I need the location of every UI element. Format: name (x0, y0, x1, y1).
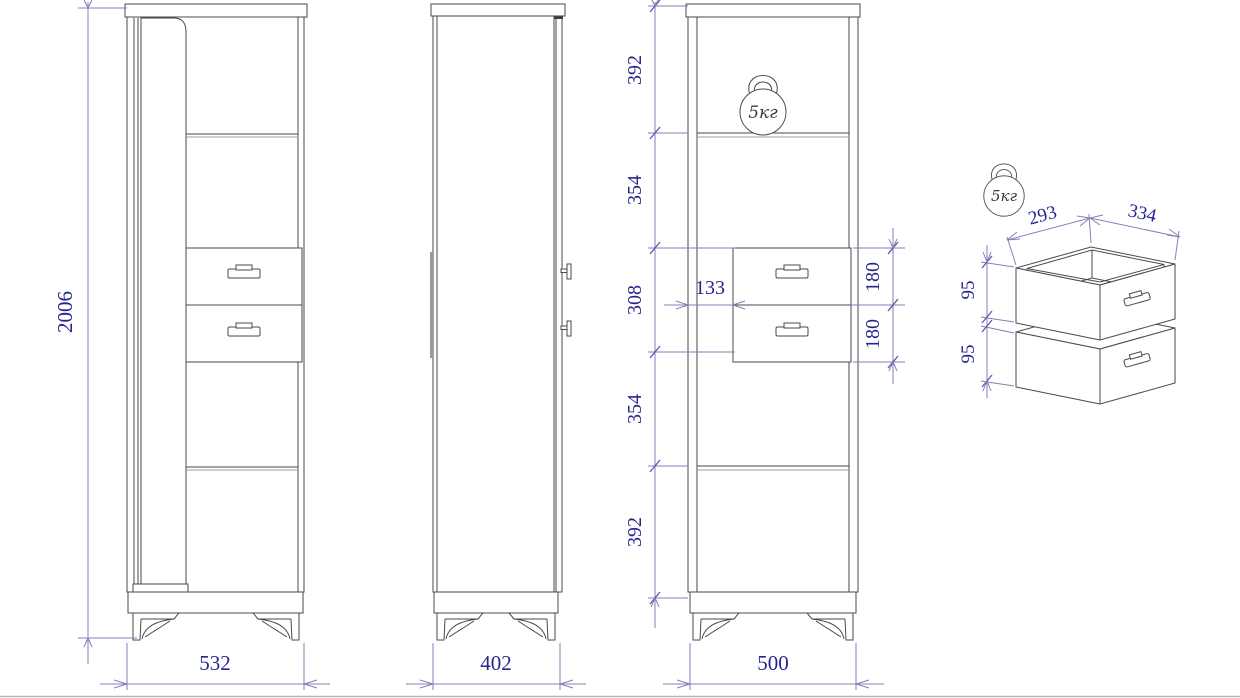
dim-section-354-upper: 354 (624, 175, 646, 205)
dim-section-354-lower: 354 (624, 394, 646, 424)
dim-iso-95-lower: 95 (958, 345, 979, 364)
dim-iso-95-upper: 95 (958, 281, 979, 300)
dim-side-depth: 402 (406, 643, 586, 690)
side-view (431, 4, 571, 640)
leg-bracket (437, 613, 483, 640)
cornice (125, 4, 307, 17)
dim-front-width: 532 (100, 643, 330, 690)
cornice (431, 4, 565, 16)
dim-section-392-bottom: 392 (624, 517, 646, 547)
max-load-label: 5кг (748, 103, 778, 123)
dim-section-392-top: 392 (624, 55, 646, 85)
dim-offset-133: 133 (695, 277, 725, 299)
leg-bracket (133, 613, 179, 640)
dim-iso-heights: 95 95 (958, 245, 1014, 398)
dim-front-height: 2006 (53, 0, 137, 664)
leg-bracket (807, 613, 853, 640)
dim-height-2006: 2006 (53, 291, 77, 333)
dim-section-308: 308 (624, 285, 646, 315)
dim-iso-334: 334 (1126, 200, 1159, 227)
drawer-detail-iso: 5кг 293 334 95 95 (958, 164, 1180, 404)
dim-depth-402: 402 (480, 651, 512, 675)
cornice (686, 4, 860, 17)
leg-bracket (509, 613, 555, 640)
leg-bracket (253, 613, 299, 640)
dim-drawer-180-lower: 180 (862, 319, 884, 349)
cabinet-technical-drawing: 5кг 2006 532 402 392 354 308 354 392 180… (0, 0, 1240, 698)
front-view (125, 4, 307, 640)
drawing-canvas: 5кг 2006 532 402 392 354 308 354 392 180… (0, 0, 1240, 698)
dim-drawer-heights: 180 180 (851, 228, 905, 384)
dimensioned-front-view: 5кг (686, 4, 860, 640)
dim-bottom-width-500: 500 (663, 643, 884, 690)
leg-bracket (693, 613, 739, 640)
dim-width-500: 500 (757, 651, 789, 675)
dim-width-532: 532 (199, 651, 231, 675)
dim-iso-293: 293 (1026, 202, 1059, 230)
dim-drawer-180-upper: 180 (862, 262, 884, 292)
max-load-label-iso: 5кг (991, 187, 1018, 205)
